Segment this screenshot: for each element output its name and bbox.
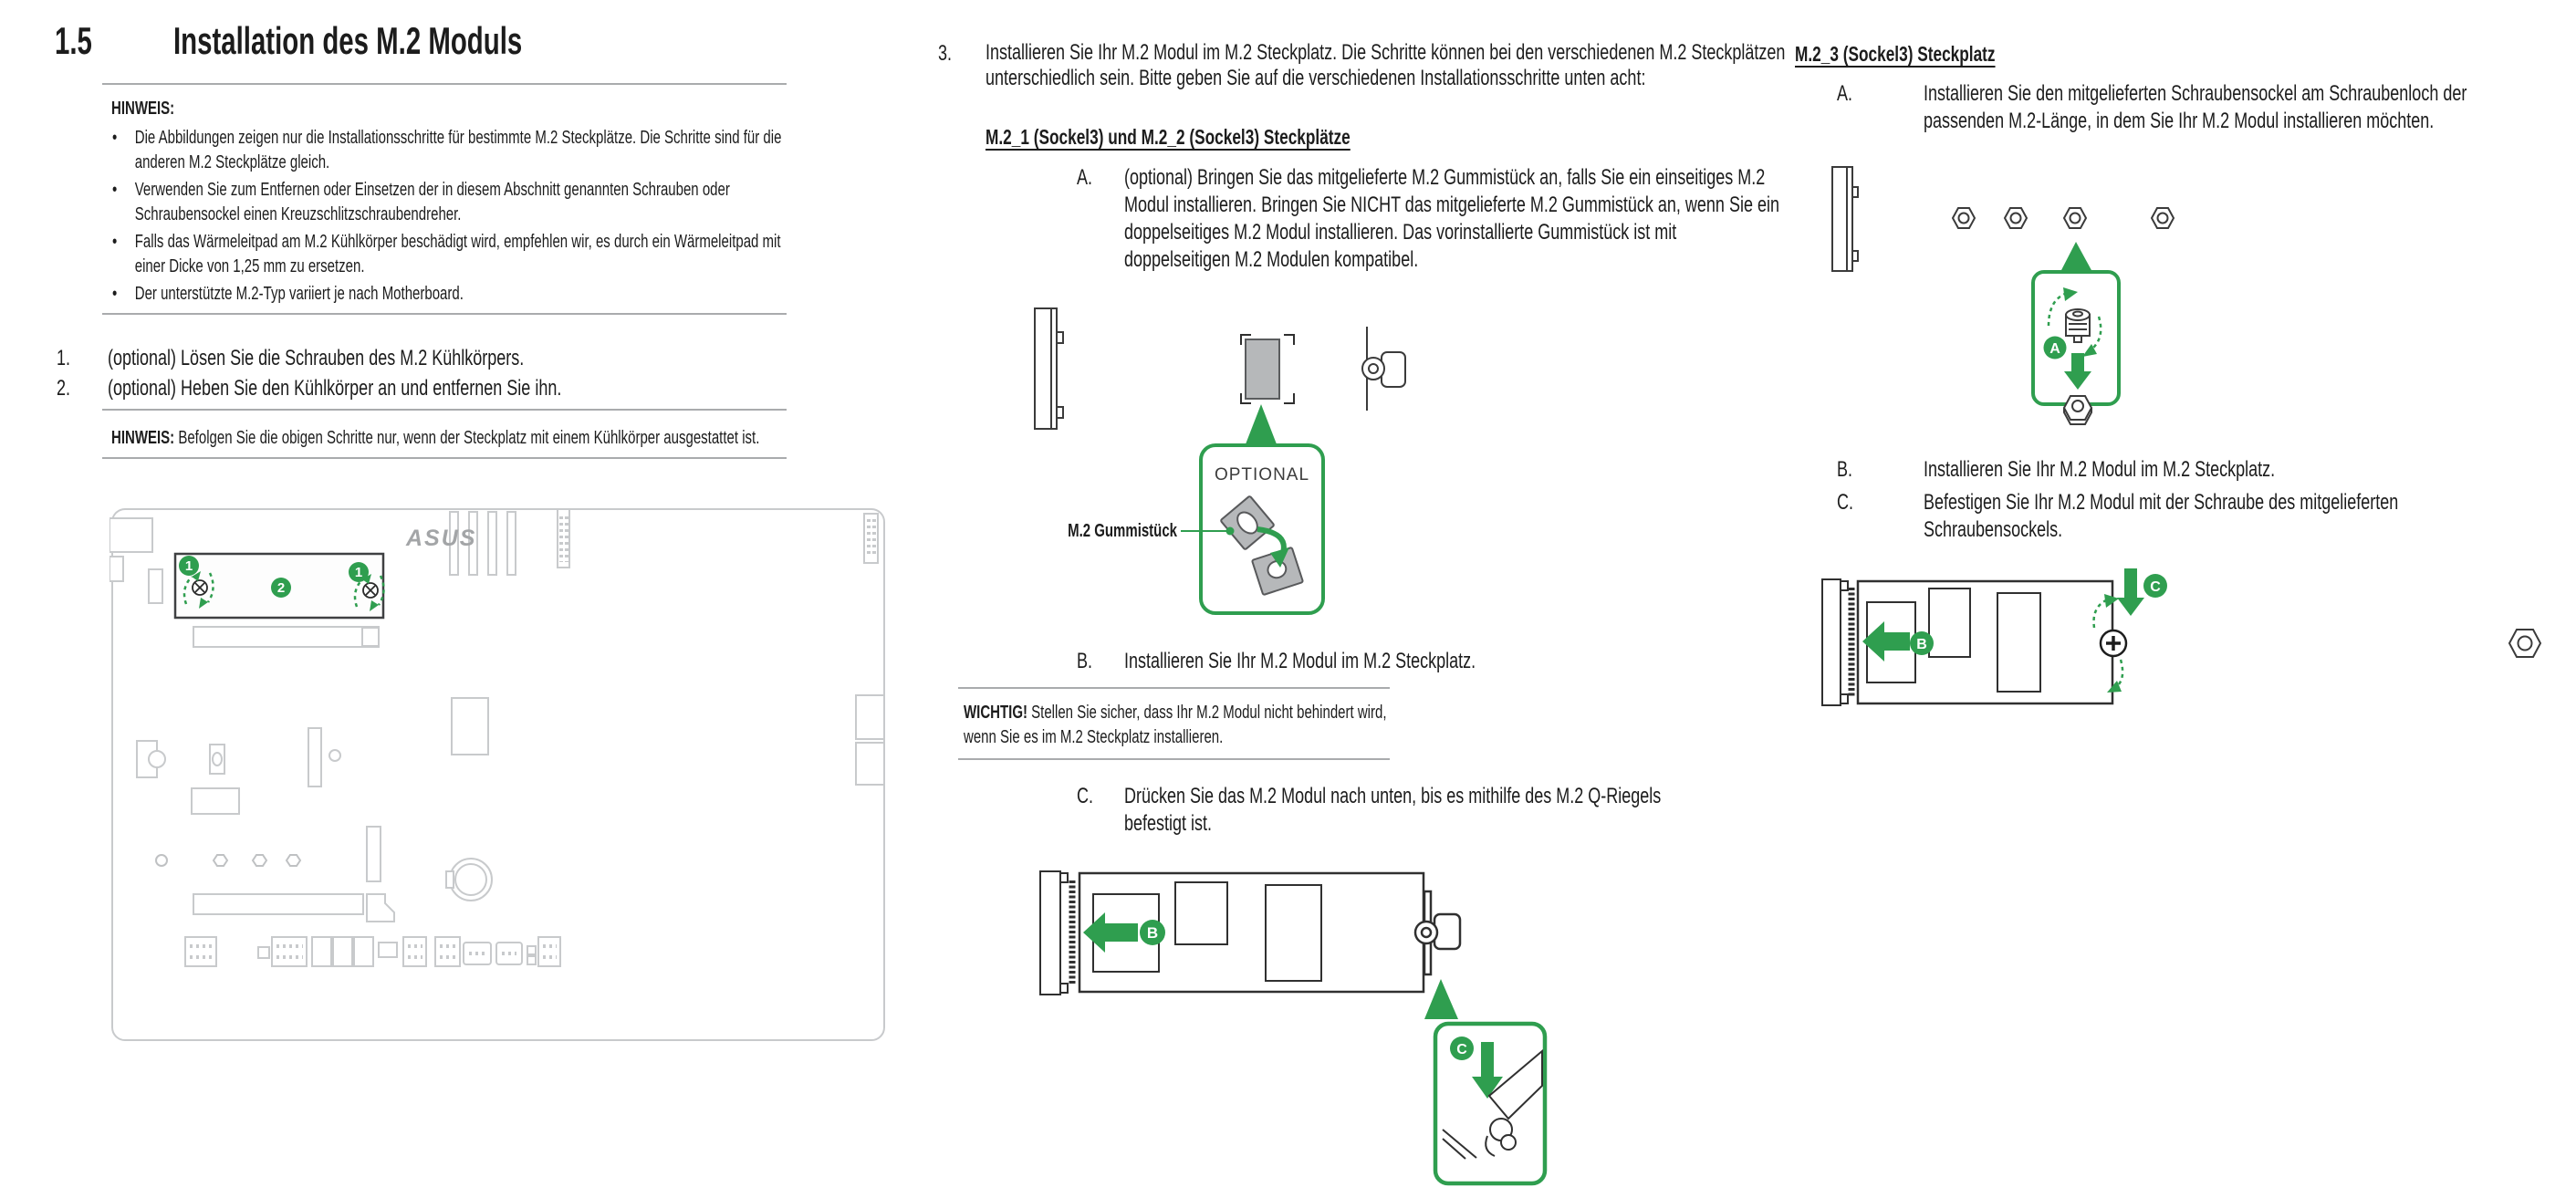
stepB-text: Installieren Sie Ihr M.2 Modul im M.2 St…	[1124, 648, 1476, 675]
hex-nut-icon	[2064, 396, 2091, 424]
stepC-label: C.	[1077, 783, 1093, 810]
jumper	[527, 946, 536, 954]
usb-header	[435, 937, 460, 966]
cpu-bracket-screw	[149, 751, 165, 767]
stepC-text-right: Befestigen Sie Ihr M.2 Modul mit der Sch…	[1924, 489, 2526, 544]
m2-slot-end	[362, 628, 379, 646]
screw-down-arrow	[2117, 568, 2144, 616]
edge-connector	[856, 743, 884, 785]
step1-number: 1.	[57, 345, 70, 372]
badge-1-right: 1	[355, 565, 362, 580]
note-bullet: •Die Abbildungen zeigen nur die Installa…	[112, 126, 790, 175]
important-top-rule	[958, 687, 1390, 689]
pin-header	[354, 937, 373, 966]
vertical-slot	[308, 728, 321, 787]
io-port	[110, 557, 123, 581]
jumper	[527, 956, 536, 964]
badge-c: C	[1456, 1042, 1467, 1057]
note1-label: HINWEIS:	[111, 97, 317, 121]
component	[192, 788, 239, 814]
bullet-dot-icon: •	[112, 282, 135, 307]
pcie-x16-slot	[193, 894, 363, 914]
bullet-dot-icon: •	[112, 178, 135, 227]
bullet-dot-icon: •	[112, 126, 135, 175]
pad-label-dot	[1226, 527, 1235, 536]
stepA-label: A.	[1077, 164, 1092, 192]
note-bullet: •Verwenden Sie zum Entfernen oder Einset…	[112, 178, 790, 227]
bullet-text: Der unterstützte M.2-Typ variiert je nac…	[135, 282, 464, 307]
note2-bottom-rule	[102, 457, 787, 459]
m2-socket-bracket	[1822, 579, 1848, 705]
jumper	[258, 947, 269, 958]
note1-bullets: •Die Abbildungen zeigen nur die Installa…	[112, 126, 790, 309]
step2-number: 2.	[57, 375, 70, 402]
stepB-text-right: Installieren Sie Ihr M.2 Modul im M.2 St…	[1924, 456, 2275, 484]
io-port	[110, 518, 152, 552]
bullet-dot-icon: •	[112, 230, 135, 279]
usb-header	[403, 937, 426, 966]
step3-number: 3.	[938, 40, 952, 68]
pin-header	[272, 937, 307, 966]
bullet-text: Falls das Wärmeleitpad am M.2 Kühlkörper…	[135, 230, 790, 279]
component-hole	[213, 753, 222, 766]
pointer-triangle	[2060, 242, 2092, 272]
step1-text: (optional) Lösen Sie die Schrauben des M…	[108, 345, 524, 372]
stepC-label-right: C.	[1837, 489, 1853, 516]
heading-m2-3: M.2_3 (Sockel3) Steckplatz	[1795, 42, 1996, 67]
note1-bottom-rule	[102, 313, 787, 315]
rubber-pad-figure: OPTIONAL M.2 Gummistück	[1022, 301, 1428, 622]
note2-top-rule	[102, 409, 787, 411]
section-number: 1.5	[55, 20, 92, 62]
badge-2: 2	[277, 580, 285, 596]
heading-m2-1-2: M.2_1 (Sockel3) und M.2_2 (Sockel3) Stec…	[986, 125, 1351, 150]
step2-text: (optional) Heben Sie den Kühlkörper an u…	[108, 375, 561, 402]
battery-inner	[455, 864, 486, 895]
q-latch-icon	[1362, 327, 1405, 411]
badge-a: A	[2049, 341, 2060, 357]
m2-slot	[193, 627, 379, 647]
pin-header	[312, 937, 331, 966]
pointer-triangle	[1244, 404, 1278, 449]
module-install-figure: B C	[1022, 862, 1570, 1193]
philips-screw-icon	[2101, 630, 2126, 656]
pcie-x1-slot	[488, 512, 496, 575]
badge-c-right: C	[2150, 579, 2161, 595]
stepB-label: B.	[1077, 648, 1092, 675]
bullet-text: Verwenden Sie zum Entfernen oder Einsetz…	[135, 178, 790, 227]
pad-label-group: M.2 Gummistück	[1068, 520, 1177, 541]
stepB-label-right: B.	[1837, 456, 1852, 484]
note2-label: HINWEIS:	[111, 428, 174, 448]
pin-header	[333, 937, 352, 966]
pin-header	[185, 937, 216, 966]
badge-1-left: 1	[185, 558, 193, 574]
important-note: WICHTIG! Stellen Sie sicher, dass Ihr M.…	[964, 701, 1392, 750]
motherboard-figure: ASUS 1 2 1	[110, 502, 891, 1049]
module-screw-figure: B C	[1820, 564, 2550, 728]
stepC-text: Drücken Sie das M.2 Modul nach unten, bi…	[1124, 783, 1726, 838]
hex-nut-icon	[2509, 630, 2540, 657]
note-bullet: •Der unterstützte M.2-Typ variiert je na…	[112, 282, 790, 307]
pointer-triangle	[1424, 979, 1458, 1019]
asus-logo: ASUS	[405, 526, 476, 551]
bullet-text: Die Abbildungen zeigen nur die Installat…	[135, 126, 790, 175]
manual-page: { "colors": { "green": "#2F9E4F", "text"…	[0, 0, 2576, 1198]
vertical-slot	[367, 827, 381, 881]
pin-header	[538, 937, 560, 966]
stepA-text-right: Installieren Sie den mitgelieferten Schr…	[1924, 80, 2533, 135]
jumper	[379, 943, 397, 957]
screw-hole-nuts	[1953, 208, 2174, 228]
m2-socket-bracket	[1040, 871, 1068, 995]
rubber-pad-flat	[1241, 335, 1294, 403]
optional-label: OPTIONAL	[1215, 465, 1309, 484]
fan-header	[149, 569, 162, 603]
m2-socket-icon	[1035, 308, 1063, 429]
important-label: WICHTIG!	[964, 703, 1027, 723]
mount-hole	[329, 750, 340, 761]
important-text: Stellen Sie sicher, dass Ihr M.2 Modul n…	[964, 703, 1387, 747]
pcie-x1-slot	[507, 512, 516, 575]
stepA-text: (optional) Bringen Sie das mitgelieferte…	[1124, 164, 1781, 274]
page-title: Installation des M.2 Moduls	[173, 20, 522, 62]
badge-b-right: B	[1916, 637, 1927, 652]
pad-label: M.2 Gummistück	[1068, 520, 1177, 541]
note2-text: Befolgen Sie die obigen Schritte nur, we…	[178, 428, 759, 448]
badge-b: B	[1147, 924, 1158, 942]
note1-top-rule	[102, 83, 787, 85]
edge-connector	[856, 695, 884, 739]
battery-tab	[446, 871, 454, 888]
stepA-label-right: A.	[1837, 80, 1852, 108]
chipset	[452, 698, 488, 755]
step3-text: Installieren Sie Ihr M.2 Modul im M.2 St…	[986, 40, 1787, 91]
m2-socket-icon	[1832, 167, 1858, 271]
standoff-figure: A	[1820, 160, 2249, 432]
note-bullet: •Falls das Wärmeleitpad am M.2 Kühlkörpe…	[112, 230, 790, 279]
important-bottom-rule	[958, 758, 1390, 760]
note2: HINWEIS: Befolgen Sie die obigen Schritt…	[111, 426, 830, 451]
